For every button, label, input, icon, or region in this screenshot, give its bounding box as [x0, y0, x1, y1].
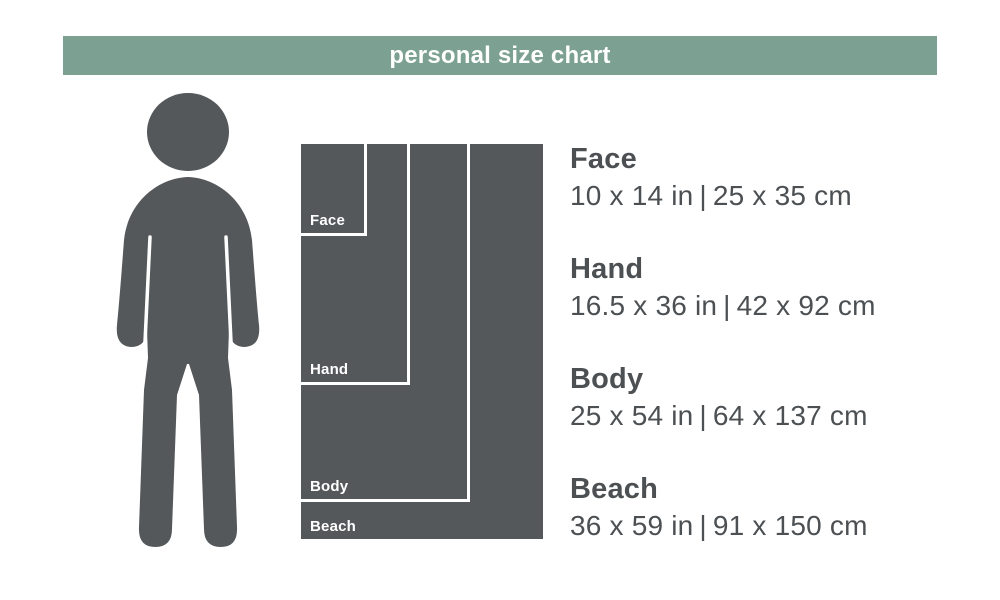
size-chart-infographic: personal size chart Beach Body Hand Fac — [0, 0, 1000, 600]
person-head — [147, 93, 229, 171]
header-bar: personal size chart — [63, 36, 937, 75]
size-cm-beach: 91 x 150 cm — [713, 510, 868, 541]
size-inches-beach: 36 x 59 in — [570, 510, 693, 541]
size-separator: | — [693, 400, 712, 431]
size-inches-hand: 16.5 x 36 in — [570, 290, 717, 321]
size-dims-beach: 36 x 59 in|91 x 150 cm — [570, 508, 970, 543]
size-entry-body: Body 25 x 54 in|64 x 137 cm — [570, 361, 970, 433]
size-entry-face: Face 10 x 14 in|25 x 35 cm — [570, 141, 970, 213]
size-entry-beach: Beach 36 x 59 in|91 x 150 cm — [570, 471, 970, 543]
size-name-hand: Hand — [570, 251, 970, 288]
size-separator: | — [717, 290, 736, 321]
towel-size-diagram: Beach Body Hand Face — [301, 144, 543, 539]
size-entry-hand: Hand 16.5 x 36 in|42 x 92 cm — [570, 251, 970, 323]
size-name-beach: Beach — [570, 471, 970, 508]
person-silhouette-icon — [117, 93, 259, 547]
page-title: personal size chart — [389, 42, 610, 70]
size-separator: | — [693, 510, 712, 541]
person-silhouette — [110, 90, 270, 550]
size-dims-face: 10 x 14 in|25 x 35 cm — [570, 178, 970, 213]
person-body — [117, 177, 259, 547]
towel-label-hand: Hand — [310, 361, 348, 378]
size-name-body: Body — [570, 361, 970, 398]
towel-rect-face: Face — [301, 144, 367, 236]
size-cm-face: 25 x 35 cm — [713, 180, 852, 211]
size-inches-body: 25 x 54 in — [570, 400, 693, 431]
size-cm-body: 64 x 137 cm — [713, 400, 868, 431]
size-name-face: Face — [570, 141, 970, 178]
size-dims-body: 25 x 54 in|64 x 137 cm — [570, 398, 970, 433]
size-cm-hand: 42 x 92 cm — [737, 290, 876, 321]
towel-label-body: Body — [310, 478, 348, 495]
size-separator: | — [693, 180, 712, 211]
size-inches-face: 10 x 14 in — [570, 180, 693, 211]
towel-label-beach: Beach — [310, 518, 356, 535]
size-dims-hand: 16.5 x 36 in|42 x 92 cm — [570, 288, 970, 323]
towel-label-face: Face — [310, 212, 345, 229]
